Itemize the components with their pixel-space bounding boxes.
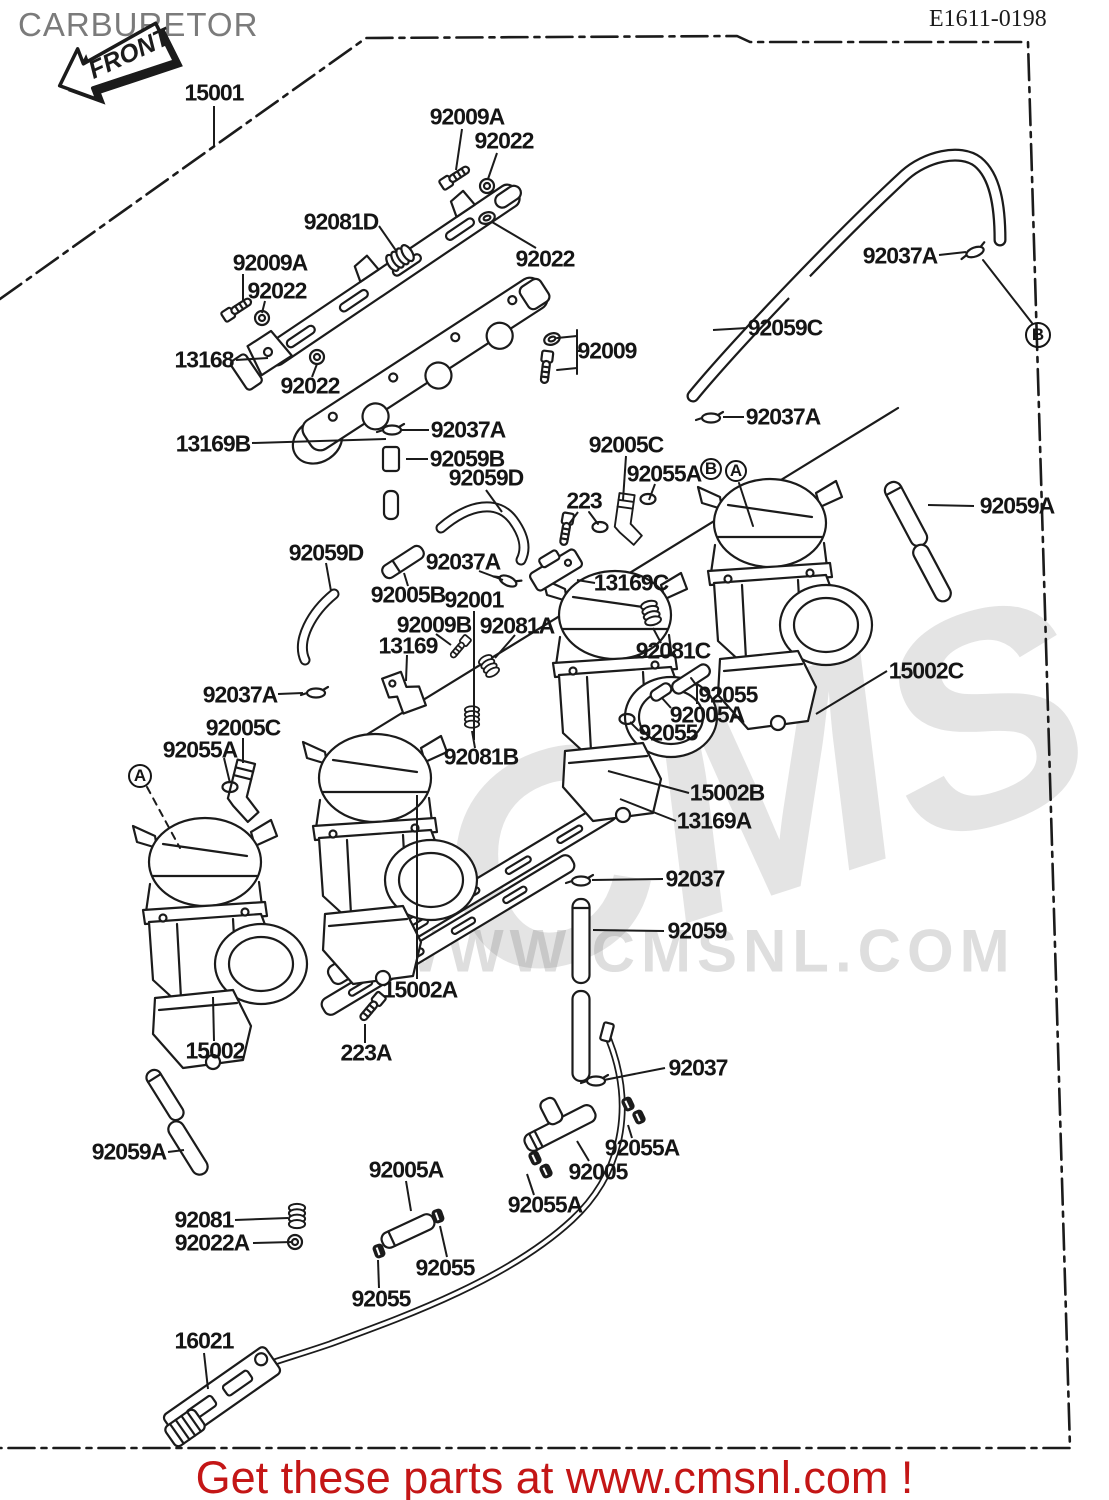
part-label-92001[interactable]: 92001 [445, 587, 504, 614]
part-label-92055a[interactable]: 92055A [163, 737, 238, 764]
part-label-92059c[interactable]: 92059C [748, 315, 823, 342]
part-label-92055[interactable]: 92055 [639, 720, 698, 747]
part-label-13169b[interactable]: 13169B [176, 431, 251, 458]
part-label-92022[interactable]: 92022 [475, 128, 534, 155]
part-label-92005b[interactable]: 92005B [371, 582, 446, 609]
part-label-92081d[interactable]: 92081D [304, 209, 379, 236]
diagram-code: E1611-0198 [929, 6, 1047, 33]
part-label-15002a[interactable]: 15002A [383, 977, 458, 1004]
part-label-92037[interactable]: 92037 [666, 866, 725, 893]
part-label-13169[interactable]: 13169 [379, 633, 438, 660]
part-label-92037[interactable]: 92037 [669, 1055, 728, 1082]
part-label-92081c[interactable]: 92081C [636, 638, 711, 665]
part-label-92059[interactable]: 92059 [668, 918, 727, 945]
part-label-92055a[interactable]: 92055A [508, 1192, 583, 1219]
part-label-92037a[interactable]: 92037A [863, 243, 938, 270]
part-label-13168[interactable]: 13168 [175, 347, 234, 374]
reference-marker-a: A [128, 764, 152, 788]
part-label-92059d[interactable]: 92059D [449, 465, 524, 492]
part-label-92009[interactable]: 92009 [578, 338, 637, 365]
part-label-92059a[interactable]: 92059A [92, 1139, 167, 1166]
part-label-92022[interactable]: 92022 [516, 246, 575, 273]
part-label-92037a[interactable]: 92037A [203, 682, 278, 709]
part-label-92009a[interactable]: 92009A [430, 104, 505, 131]
part-label-92055[interactable]: 92055 [352, 1286, 411, 1313]
part-label-92022[interactable]: 92022 [281, 373, 340, 400]
part-label-223a[interactable]: 223A [341, 1040, 392, 1067]
part-label-13169a[interactable]: 13169A [677, 808, 752, 835]
part-label-92055a[interactable]: 92055A [605, 1135, 680, 1162]
part-label-92037a[interactable]: 92037A [431, 417, 506, 444]
part-label-223[interactable]: 223 [566, 488, 601, 515]
reference-marker-b: B [1025, 322, 1051, 348]
part-label-92005c[interactable]: 92005C [589, 432, 664, 459]
part-label-15002b[interactable]: 15002B [690, 780, 765, 807]
part-label-16021[interactable]: 16021 [175, 1328, 234, 1355]
part-label-92037a[interactable]: 92037A [426, 549, 501, 576]
parts-diagram-page: CMS WWW.CMSNL.COM [0, 0, 1109, 1500]
part-label-92055[interactable]: 92055 [416, 1255, 475, 1282]
footer-shop-link[interactable]: Get these parts at www.cmsnl.com ! [0, 1452, 1109, 1500]
part-label-15002c[interactable]: 15002C [889, 658, 964, 685]
part-label-92081b[interactable]: 92081B [444, 744, 519, 771]
part-label-92055a[interactable]: 92055A [627, 461, 702, 488]
part-label-92059a[interactable]: 92059A [980, 493, 1055, 520]
part-label-15002[interactable]: 15002 [186, 1038, 245, 1065]
reference-marker-b: B [700, 458, 722, 480]
part-label-92009a[interactable]: 92009A [233, 250, 308, 277]
part-label-92005a[interactable]: 92005A [369, 1157, 444, 1184]
part-label-92022[interactable]: 92022 [248, 278, 307, 305]
part-label-92059d[interactable]: 92059D [289, 540, 364, 567]
part-label-92081a[interactable]: 92081A [480, 613, 555, 640]
part-label-92005[interactable]: 92005 [569, 1159, 628, 1186]
part-label-92037a[interactable]: 92037A [746, 404, 821, 431]
part-label-92022a[interactable]: 92022A [175, 1230, 250, 1257]
reference-marker-a: A [725, 460, 747, 482]
part-label-13169c[interactable]: 13169C [594, 570, 669, 597]
